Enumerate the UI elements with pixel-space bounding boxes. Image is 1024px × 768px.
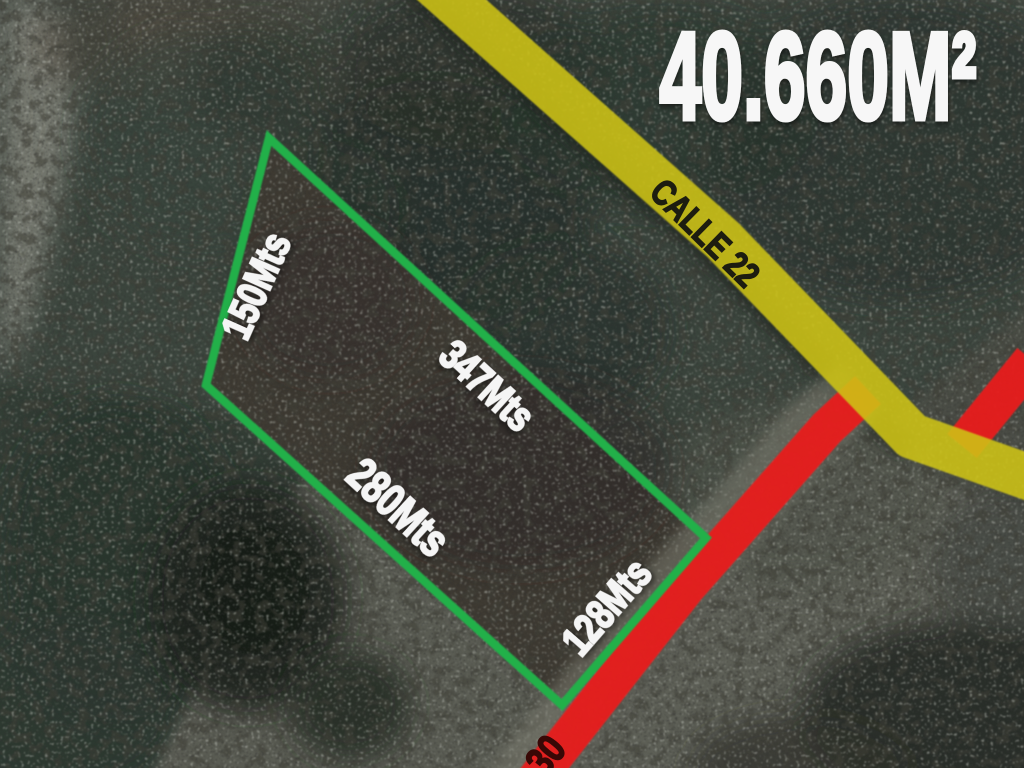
svg-text:40.660M²: 40.660M² [660,6,977,145]
